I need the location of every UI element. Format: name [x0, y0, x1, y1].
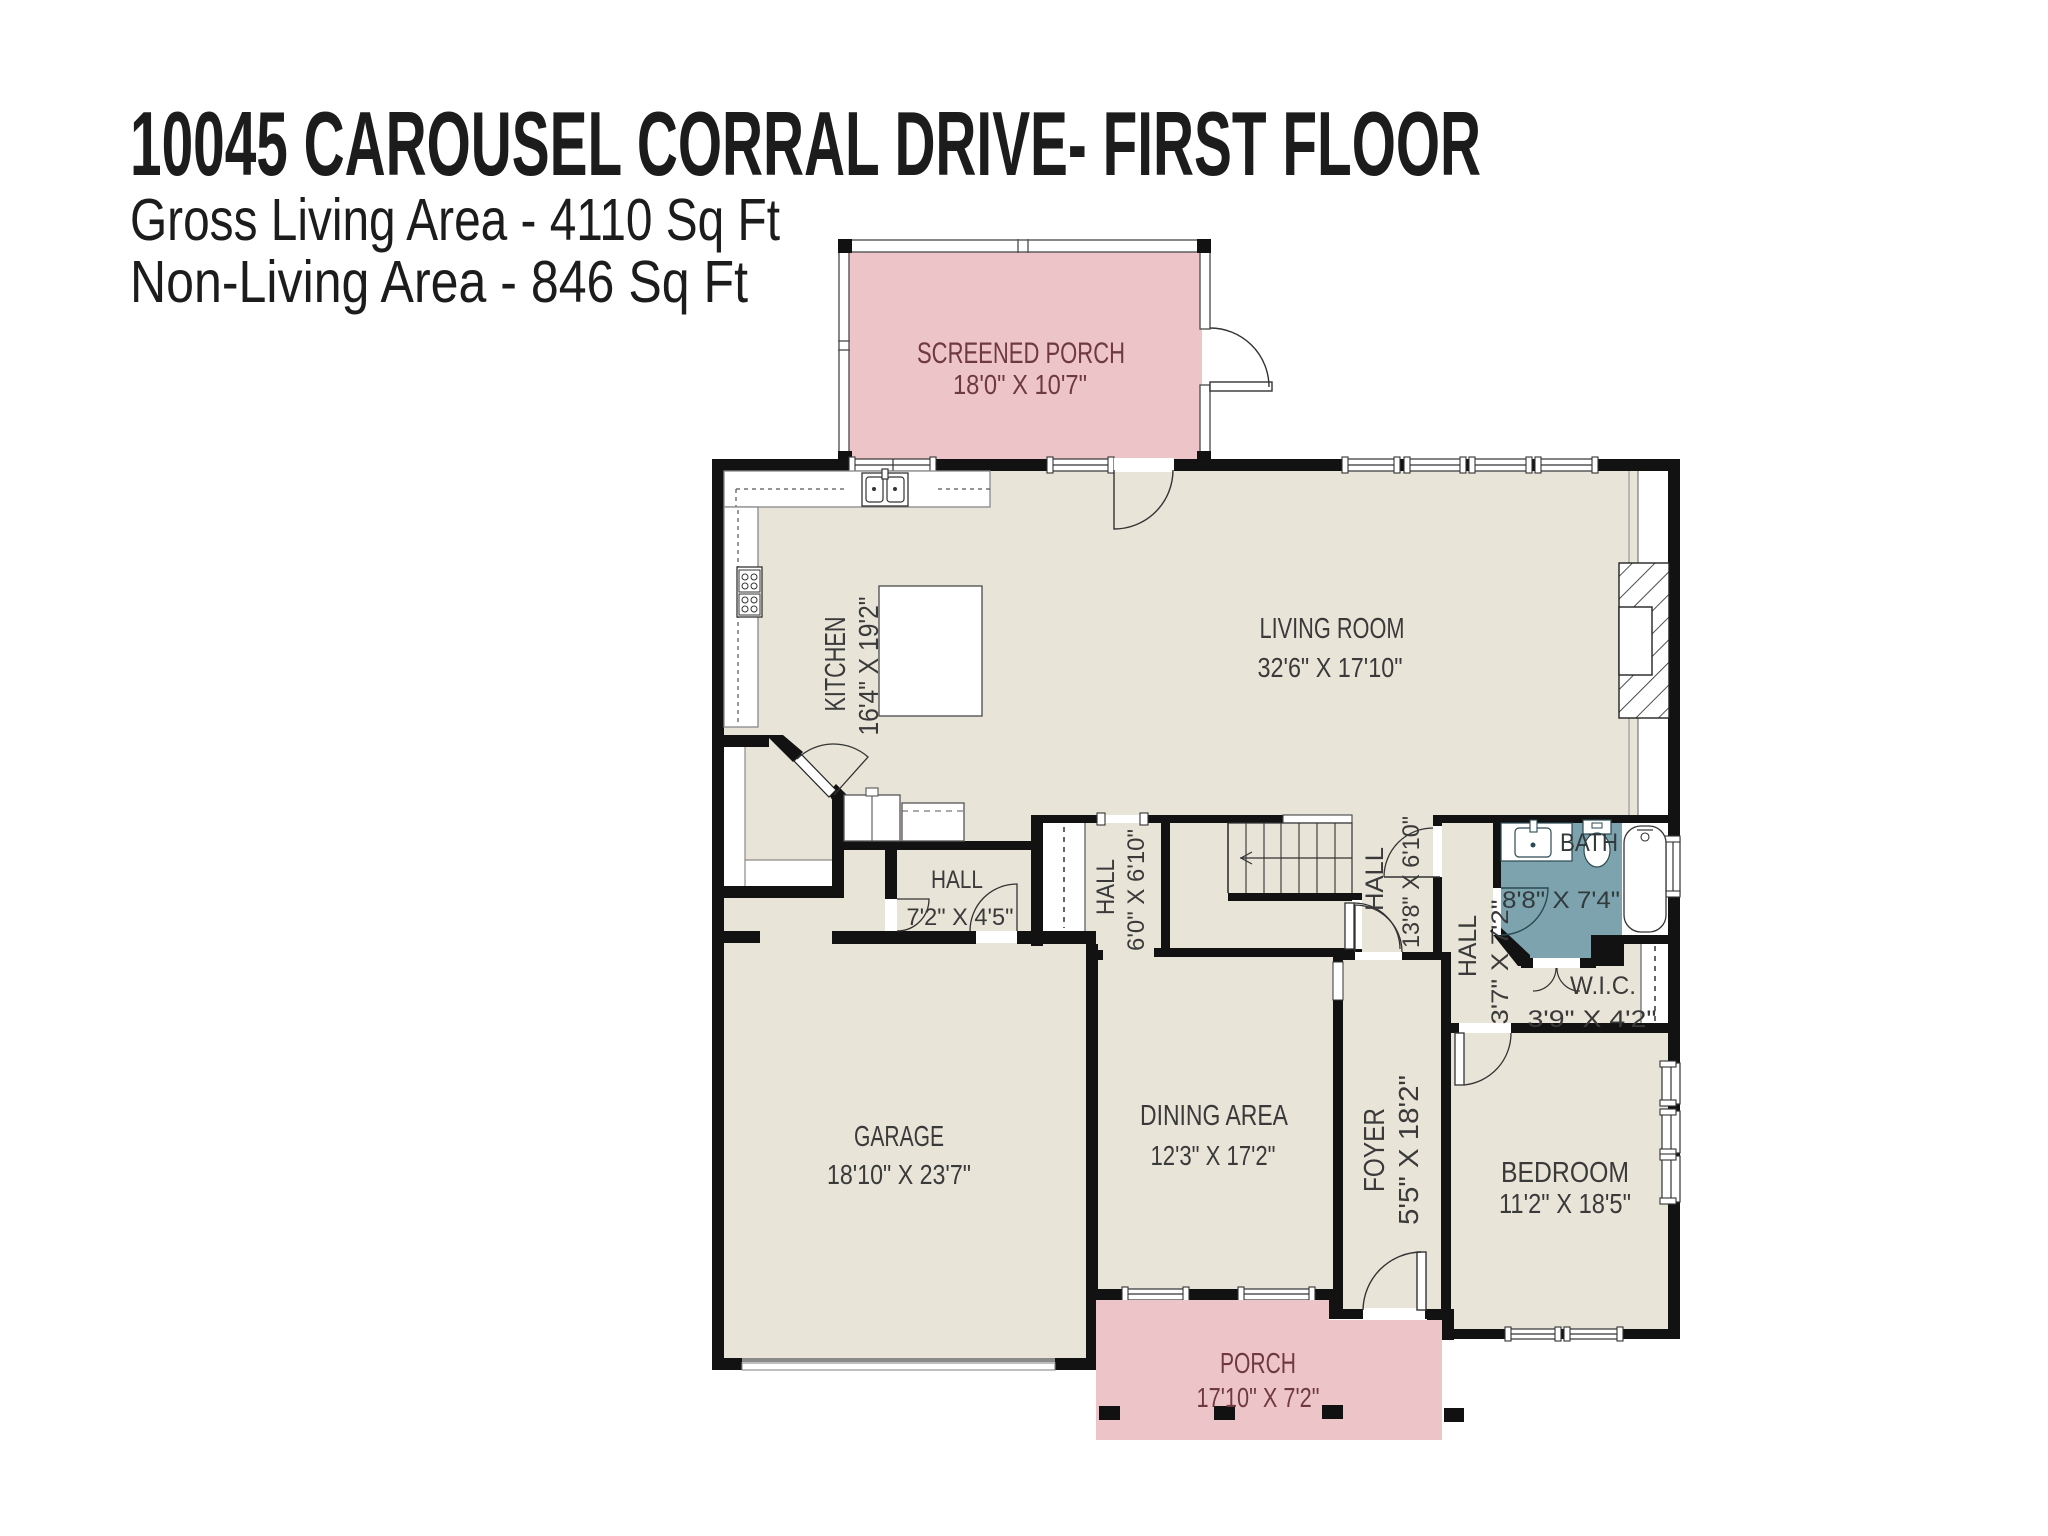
svg-text:3'7" X 7'2": 3'7" X 7'2"	[1487, 900, 1514, 1025]
svg-text:11'2" X 18'5": 11'2" X 18'5"	[1499, 1188, 1631, 1219]
svg-text:18'10" X 23'7": 18'10" X 23'7"	[827, 1159, 971, 1190]
svg-text:16'4" X 19'2": 16'4" X 19'2"	[853, 597, 884, 736]
svg-text:10045 CAROUSEL CORRAL DRIVE- F: 10045 CAROUSEL CORRAL DRIVE- FIRST FLOOR	[130, 94, 1481, 195]
svg-text:HALL: HALL	[1454, 915, 1482, 977]
svg-text:13'8" X 6'10": 13'8" X 6'10"	[1398, 816, 1425, 948]
svg-text:KITCHEN: KITCHEN	[820, 617, 852, 712]
svg-text:6'0" X 6'10": 6'0" X 6'10"	[1123, 829, 1150, 951]
svg-text:HALL: HALL	[931, 866, 983, 894]
svg-text:7'2" X 4'5": 7'2" X 4'5"	[907, 904, 1014, 931]
svg-text:FOYER: FOYER	[1359, 1108, 1391, 1192]
svg-text:5'5" X 18'2": 5'5" X 18'2"	[1393, 1075, 1424, 1225]
svg-text:12'3" X 17'2": 12'3" X 17'2"	[1151, 1140, 1276, 1171]
svg-text:32'6" X 17'10": 32'6" X 17'10"	[1258, 652, 1403, 683]
svg-text:3'9" X 4'2": 3'9" X 4'2"	[1528, 1006, 1657, 1033]
svg-text:8'8" X 7'4": 8'8" X 7'4"	[1502, 887, 1620, 914]
svg-text:LIVING ROOM: LIVING ROOM	[1260, 613, 1405, 645]
svg-text:SCREENED PORCH: SCREENED PORCH	[917, 337, 1125, 370]
svg-text:18'0" X 10'7": 18'0" X 10'7"	[953, 369, 1087, 400]
svg-text:W.I.C.: W.I.C.	[1570, 972, 1636, 1000]
svg-text:HALL: HALL	[1092, 859, 1120, 915]
svg-text:Non-Living Area - 846 Sq Ft: Non-Living Area - 846 Sq Ft	[130, 249, 748, 315]
svg-text:HALL: HALL	[1361, 847, 1389, 911]
svg-text:BATH: BATH	[1560, 829, 1618, 857]
svg-text:DINING AREA: DINING AREA	[1140, 1100, 1289, 1132]
svg-text:Gross Living Area - 4110 Sq Ft: Gross Living Area - 4110 Sq Ft	[130, 187, 780, 253]
svg-text:17'10" X 7'2": 17'10" X 7'2"	[1197, 1382, 1320, 1413]
svg-text:PORCH: PORCH	[1220, 1348, 1296, 1380]
svg-text:GARAGE: GARAGE	[854, 1121, 944, 1153]
svg-text:BEDROOM: BEDROOM	[1501, 1157, 1629, 1189]
